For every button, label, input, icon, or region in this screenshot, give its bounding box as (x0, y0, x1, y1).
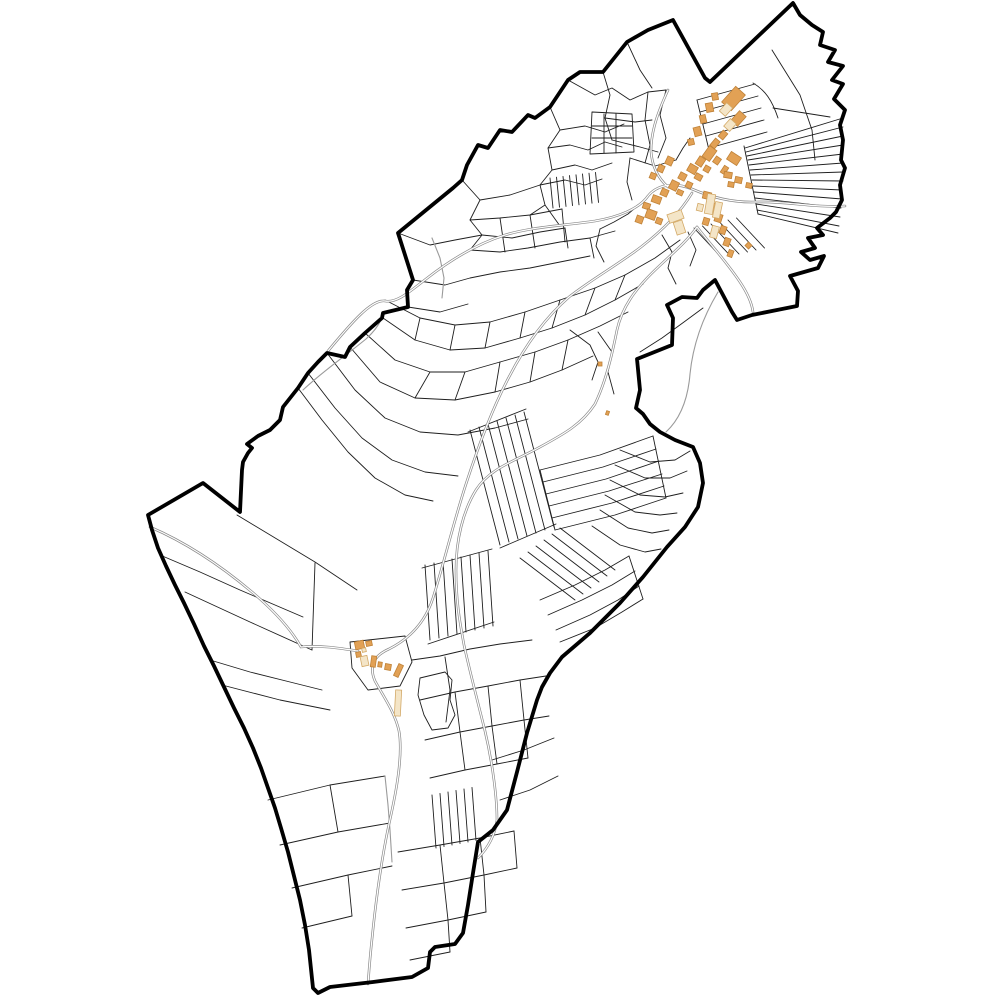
commune-boundary (148, 3, 845, 993)
cadastral-map-page (0, 0, 1000, 1000)
cadastral-map-svg (0, 0, 1000, 1000)
buildings-layer (354, 86, 752, 716)
